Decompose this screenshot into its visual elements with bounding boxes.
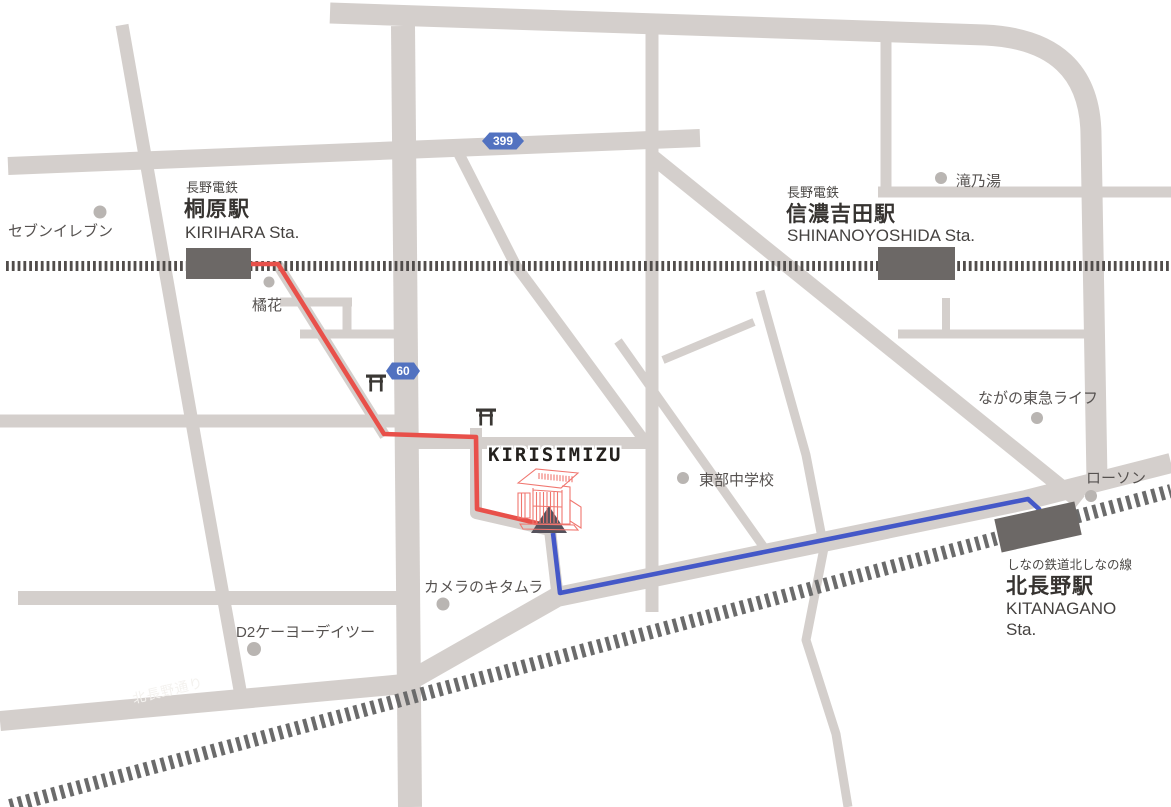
shinanoyoshida-romaji-label: SHINANOYOSHIDA Sta. (787, 226, 975, 246)
takinoyu-label: 滝乃湯 (956, 170, 1001, 191)
route-399-badge: 399 (482, 133, 524, 150)
camera-kitamura-label: カメラのキタムラ (424, 576, 543, 597)
d2-keiyo-dot (247, 642, 261, 656)
route-60-badge-label: 60 (396, 364, 410, 378)
tobu-junior-high-dot (677, 472, 689, 484)
kirihara-station-building (186, 248, 251, 279)
camera-kitamura-dot (437, 598, 450, 611)
kirihara-name-label: 桐原駅 (184, 193, 250, 223)
shinano-railway-line (10, 491, 1171, 806)
kikka-label: 橘花 (252, 294, 282, 315)
blue-route-line (553, 499, 1040, 593)
seven-eleven-dot (94, 206, 107, 219)
lawson-dot (1085, 490, 1097, 502)
tokyu-life-label: ながの東急ライフ (978, 387, 1098, 408)
kitanagano-romaji-label: KITANAGANO (1006, 599, 1116, 619)
torii-icon (366, 375, 386, 392)
shinanoyoshida-name-label: 信濃吉田駅 (786, 198, 896, 228)
road (663, 322, 754, 360)
takinoyu-dot (935, 172, 947, 184)
tobu-junior-high-label: 東部中学校 (699, 469, 774, 490)
route-399-badge-label: 399 (493, 134, 513, 148)
torii-icon (476, 409, 496, 426)
d2-keiyo-label: D2ケーヨーデイツー (236, 621, 375, 642)
seven-eleven-label: セブンイレブン (8, 220, 113, 241)
route-60-badge: 60 (386, 363, 420, 380)
road (330, 13, 1097, 480)
access-map: 399 60 セブンイレブン 長野電鉄 桐原駅 KIRIHARA Sta. 橘花… (0, 0, 1171, 807)
road (122, 25, 240, 690)
kikka-dot (264, 277, 275, 288)
kitanagano-name-label: 北長野駅 (1006, 570, 1094, 600)
kitanagano-romaji-sta-label: Sta. (1006, 620, 1036, 640)
road (458, 152, 644, 440)
shinanoyoshida-station-building (878, 247, 955, 280)
destination-label: KIRISIMIZU (488, 444, 622, 466)
kirihara-romaji-label: KIRIHARA Sta. (185, 223, 299, 243)
tokyu-life-dot (1031, 412, 1043, 424)
road (8, 138, 700, 166)
lawson-label: ローソン (1086, 467, 1146, 488)
